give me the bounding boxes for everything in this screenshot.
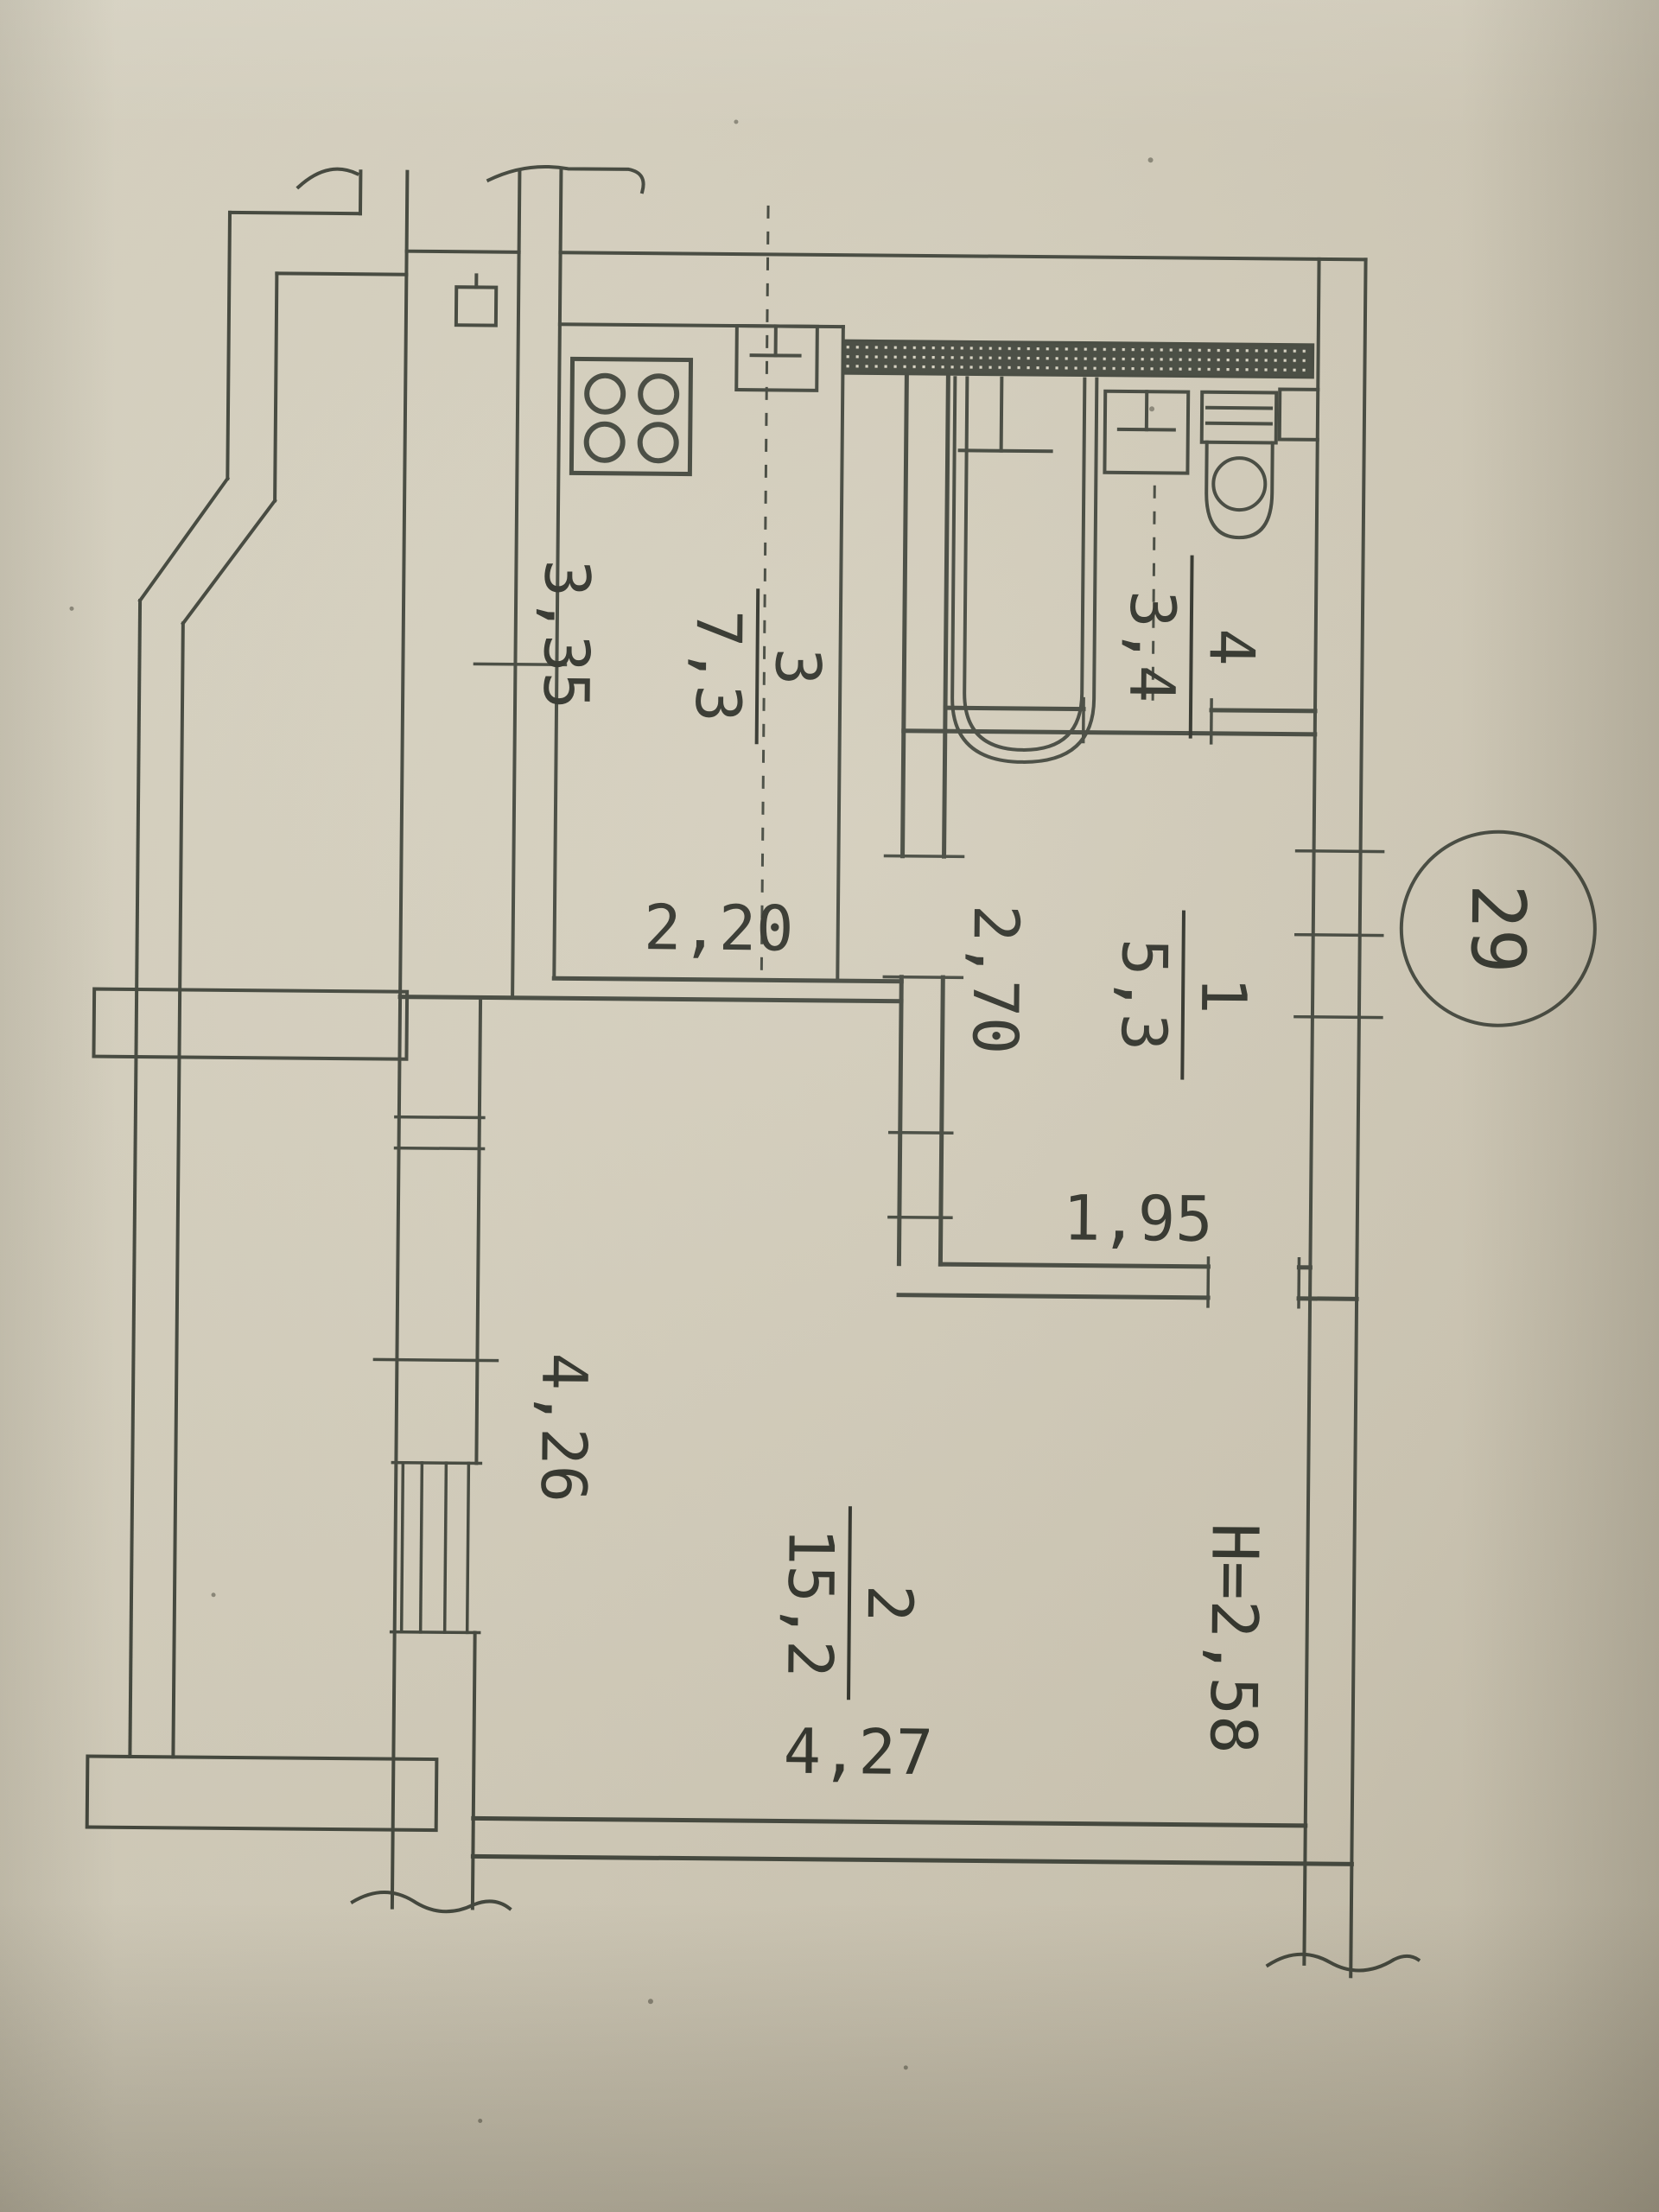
living-area: 15,2 [773, 1528, 848, 1678]
hallway-area: 5,3 [1108, 938, 1181, 1052]
hallway-number: 1 [1187, 976, 1260, 1014]
balcony-slab-lower [87, 1757, 437, 1831]
bathroom-number: 4 [1195, 628, 1268, 666]
bathtub-icon [951, 378, 1096, 762]
washbasin-icon [1104, 391, 1188, 474]
dashed-reference-lines [761, 207, 1157, 977]
break-mark-top-left [298, 168, 357, 188]
dim-1-95: 1,95 [1063, 1181, 1213, 1255]
break-mark-bottom-left [353, 1892, 510, 1912]
floor-plan-drawing: 4 3,4 3 7,3 1 5,3 2 15,2 [0, 0, 1659, 2212]
kitchen-number: 3 [761, 648, 834, 686]
kitchen-door-jambs [882, 856, 963, 1218]
dim-2-20: 2,20 [644, 891, 794, 965]
apartment-number: 29 [1453, 884, 1541, 974]
room-label-kitchen: 3 7,3 [682, 589, 836, 743]
stove-icon [571, 359, 690, 474]
living-door-jambs [1208, 1258, 1299, 1307]
kitchen-area: 7,3 [682, 609, 755, 722]
room-label-hallway: 1 5,3 [1107, 912, 1261, 1079]
dim-4-26: 4,26 [527, 1352, 601, 1503]
dim-3-35: 3,35 [530, 559, 604, 709]
duct-vent-box [456, 275, 497, 325]
break-mark-top-mid [488, 166, 644, 192]
floor-plan-photo: 4 3,4 3 7,3 1 5,3 2 15,2 [0, 0, 1659, 2212]
ceiling-height-label: H=2,58 [1195, 1522, 1271, 1754]
apartment-number-badge: 29 [1401, 831, 1596, 1027]
toilet-icon [1201, 392, 1276, 538]
living-number: 2 [854, 1585, 926, 1623]
bathroom-area: 3,4 [1116, 590, 1189, 703]
door-window-ticks [372, 663, 1385, 1640]
entry-door-ticks [1295, 851, 1383, 1018]
vent-hatch [842, 340, 1313, 378]
wall-niche-right [1280, 390, 1319, 440]
balcony-slab-upper [93, 989, 407, 1059]
kitchen-sink-icon [736, 326, 817, 391]
dim-4-27: 4,27 [783, 1715, 933, 1789]
dim-2-70: 2,70 [959, 905, 1033, 1055]
break-mark-bottom-right [1268, 1954, 1418, 1971]
room-label-living: 2 15,2 [773, 1507, 927, 1699]
